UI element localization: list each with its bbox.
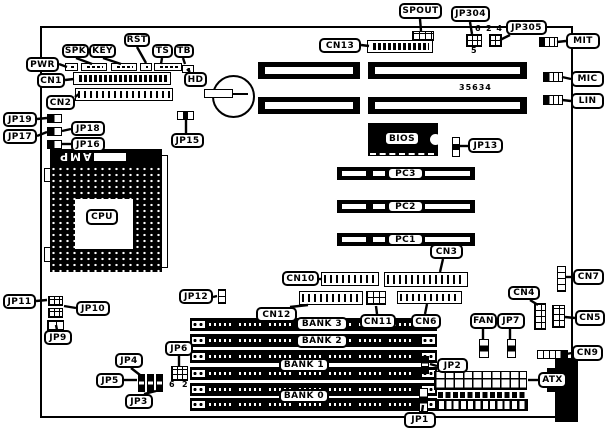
label-cn2: CN2 — [46, 95, 75, 110]
leader-jp1 — [422, 405, 423, 412]
label-jp16: JP16 — [71, 137, 105, 152]
label-atx: ATX — [538, 372, 567, 388]
leader-cn6 — [425, 304, 427, 314]
label-cn10: CN10 — [282, 271, 319, 286]
leader-spk — [76, 58, 92, 64]
label-cn4: CN4 — [508, 286, 540, 300]
leader-jp4 — [131, 368, 140, 375]
label-lin: LIN — [571, 93, 604, 109]
label-bank2: BANK 2 — [296, 334, 348, 348]
leader-jp10 — [64, 306, 76, 308]
annotation-board-number: 35634 — [459, 83, 492, 92]
leader-lin — [562, 100, 571, 101]
label-pwr: PWR — [26, 57, 59, 72]
annotation-jp305-pins-2-4: 2 4 — [486, 24, 503, 33]
leader-tb — [183, 58, 185, 64]
label-jp6: JP6 — [165, 341, 193, 356]
annotation-jp304-pin-5: 5 — [471, 46, 478, 55]
label-jp13: JP13 — [468, 138, 503, 153]
label-spk: SPK — [62, 44, 89, 58]
leader-key — [103, 58, 121, 64]
leader-cn4 — [530, 300, 538, 305]
label-key: KEY — [89, 44, 116, 58]
label-jp3: JP3 — [125, 394, 153, 409]
label-jp305: JP305 — [506, 20, 547, 35]
label-ts: TS — [152, 44, 173, 58]
leader-cn2 — [75, 94, 79, 97]
leader-jp19 — [37, 118, 47, 119]
label-pc1: PC1 — [387, 233, 424, 246]
leader-jp18 — [62, 129, 71, 131]
annotation-jp304-pin-6: 6 — [475, 24, 482, 33]
leader-jp2 — [430, 364, 437, 366]
leader-cn11 — [376, 306, 377, 314]
label-cn5: CN5 — [575, 310, 605, 326]
leader-jp12 — [213, 296, 217, 297]
label-jp11: JP11 — [3, 294, 36, 309]
motherboard-diagram: AMP SPOUTJP304JP305MITCN13MICLI — [0, 0, 606, 433]
leader-jp304 — [470, 22, 472, 34]
label-jp5: JP5 — [96, 373, 124, 388]
leader-ts — [161, 58, 162, 64]
label-pc2: PC2 — [387, 200, 424, 213]
leader-cn3 — [440, 259, 443, 272]
label-mit: MIT — [566, 33, 600, 49]
label-jp4: JP4 — [115, 353, 143, 368]
label-tb: TB — [174, 44, 194, 58]
label-jp12: JP12 — [179, 289, 213, 304]
leader-jp305 — [500, 35, 510, 40]
label-cpu: CPU — [86, 209, 118, 225]
annotation-jp6-pin-6: 6 — [169, 380, 176, 389]
label-cn7: CN7 — [573, 269, 604, 285]
label-jp1: JP1 — [404, 412, 436, 428]
label-pc3: PC3 — [387, 167, 424, 180]
label-jp2: JP2 — [437, 358, 468, 373]
label-cn9: CN9 — [572, 345, 603, 361]
label-cn13: CN13 — [319, 38, 361, 53]
leader-pwr — [59, 64, 67, 67]
leader-cn5 — [565, 317, 575, 318]
label-rst: RST — [124, 33, 150, 47]
label-cn11: CN11 — [360, 314, 396, 329]
leader-jp11 — [36, 300, 47, 301]
label-bios: BIOS — [384, 131, 420, 146]
label-jp7: JP7 — [497, 313, 525, 329]
label-jp15: JP15 — [171, 133, 204, 148]
label-cn6: CN6 — [411, 314, 441, 329]
label-jp19: JP19 — [3, 112, 37, 127]
leader-cn1 — [65, 79, 74, 80]
label-cn3: CN3 — [430, 244, 463, 259]
leader-cn13 — [361, 45, 369, 46]
label-hd: HD — [184, 72, 207, 87]
label-jp10: JP10 — [76, 301, 110, 316]
leader-spout — [420, 19, 421, 31]
annotation-jp6-pin-2: 2 — [182, 380, 189, 389]
label-cn12: CN12 — [256, 307, 297, 322]
label-jp9: JP9 — [44, 330, 72, 345]
label-spout: SPOUT — [399, 3, 442, 19]
leader-mic — [562, 77, 571, 79]
label-jp304: JP304 — [451, 6, 490, 22]
label-bank1: BANK 1 — [279, 358, 329, 372]
label-cn1: CN1 — [37, 73, 65, 88]
leader-jp17 — [37, 132, 47, 136]
label-jp18: JP18 — [71, 121, 105, 136]
label-bank3: BANK 3 — [296, 317, 348, 331]
label-bank0: BANK 0 — [279, 389, 329, 403]
leader-rst — [137, 47, 146, 63]
label-mic: MIC — [571, 71, 604, 87]
label-fan: FAN — [470, 313, 497, 329]
label-jp17: JP17 — [3, 129, 37, 144]
leader-mit — [557, 41, 566, 42]
